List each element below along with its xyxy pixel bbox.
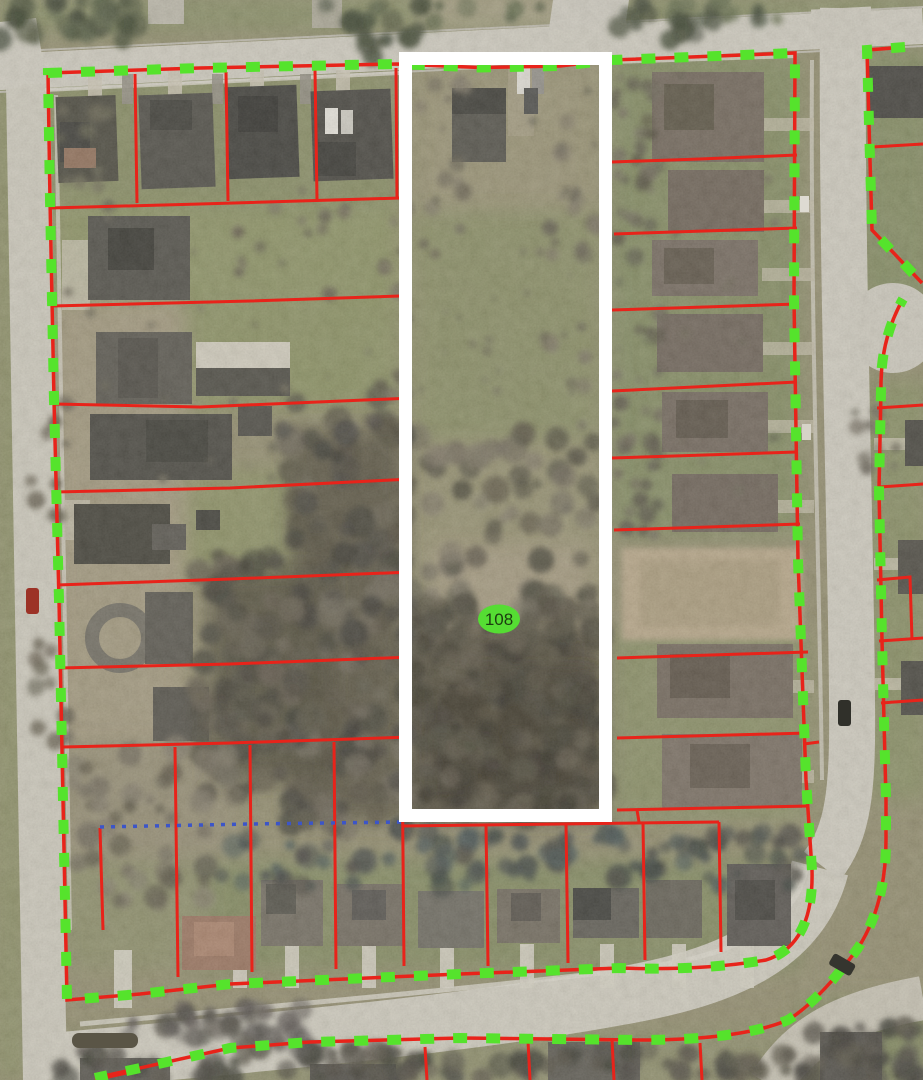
svg-text:108: 108	[485, 610, 513, 629]
